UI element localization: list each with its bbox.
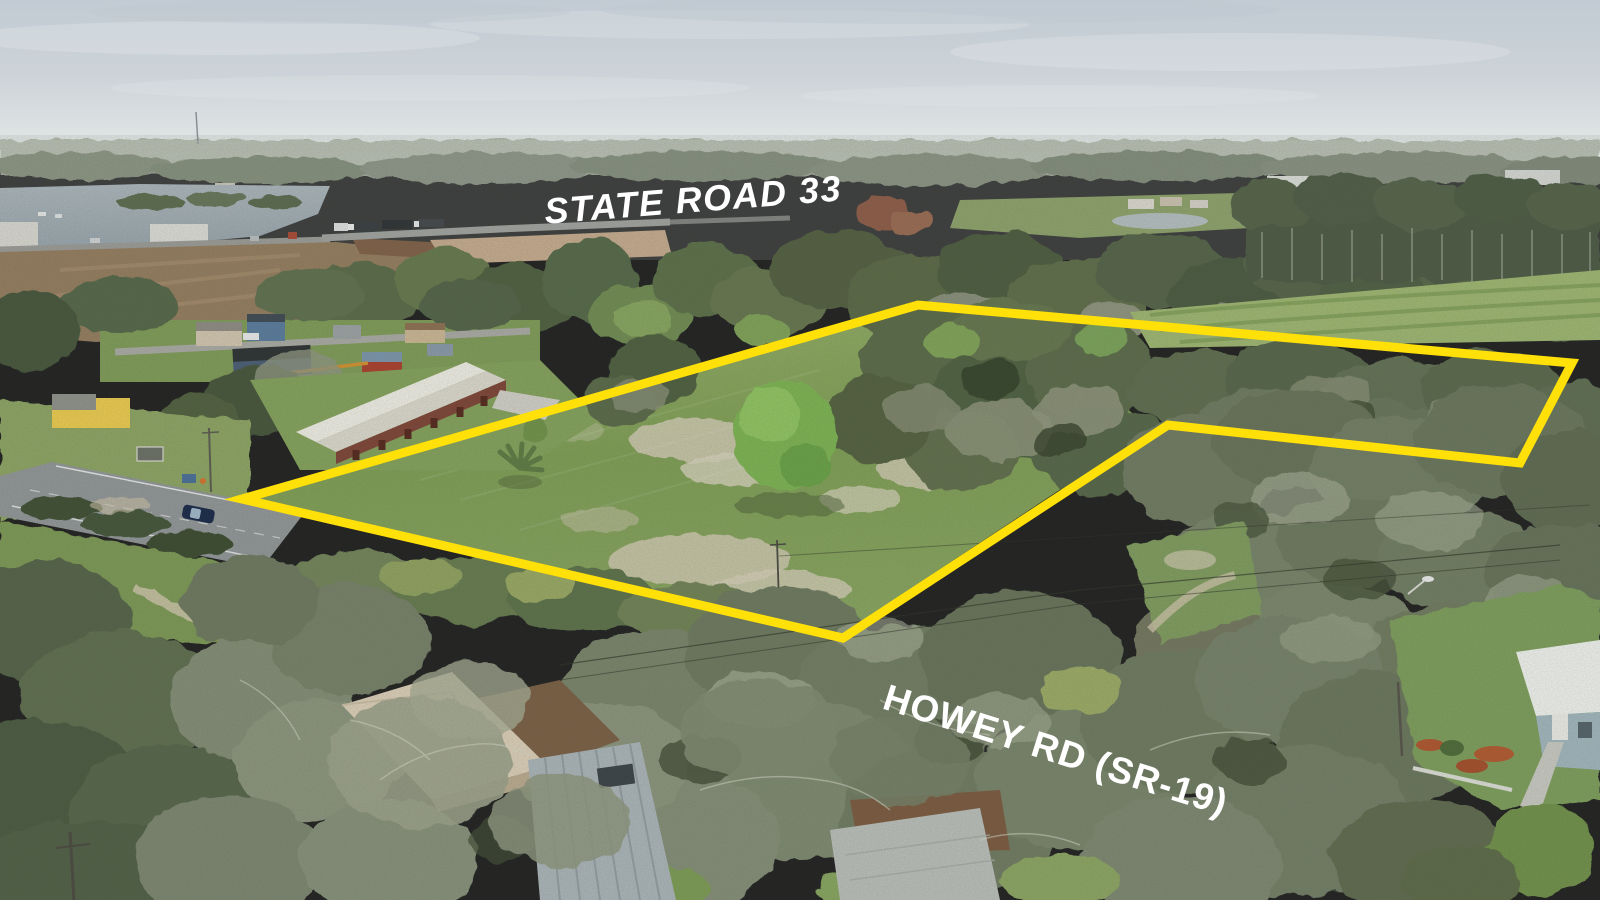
aerial-property-photo: STATE ROAD 33 HOWEY RD (SR-19) xyxy=(0,0,1600,900)
aerial-scene: STATE ROAD 33 HOWEY RD (SR-19) xyxy=(0,0,1600,900)
photo-grain xyxy=(0,135,1600,900)
